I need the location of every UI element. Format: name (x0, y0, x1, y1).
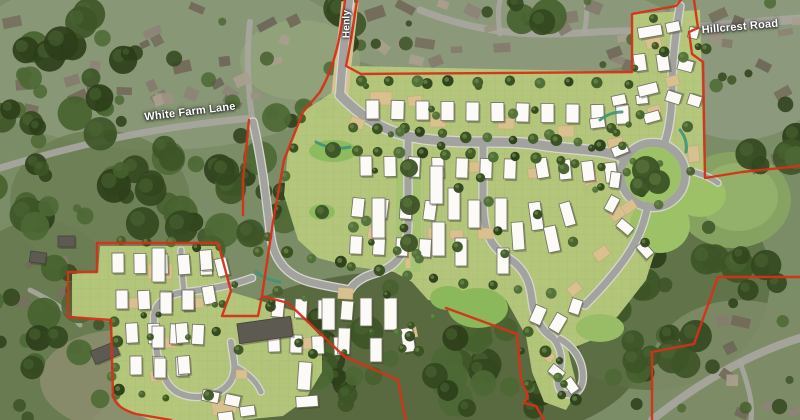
map-canvas (0, 0, 800, 420)
site-plan-map: Henly White Farm Lane Hillcrest Road (0, 0, 800, 420)
road-label-henley: Henly (342, 10, 353, 38)
